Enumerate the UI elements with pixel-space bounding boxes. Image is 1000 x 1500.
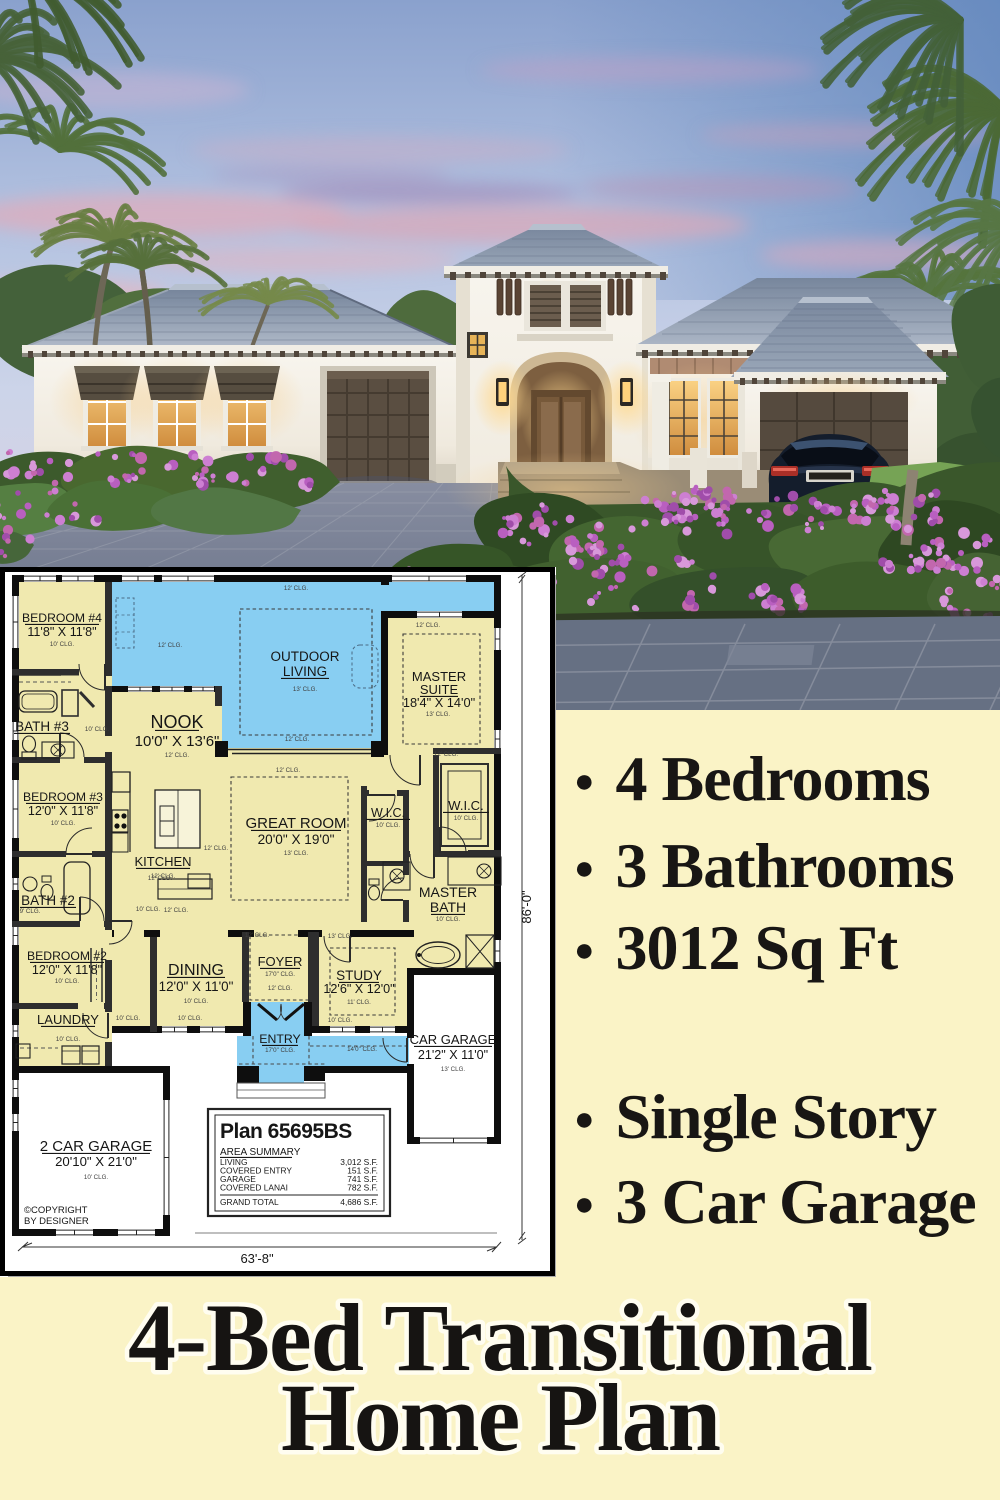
svg-text:18'4" X 14'0": 18'4" X 14'0" xyxy=(403,695,475,710)
svg-text:14'0" CLG.: 14'0" CLG. xyxy=(347,1046,377,1053)
svg-text:11'8" X 11'8": 11'8" X 11'8" xyxy=(27,625,96,639)
svg-text:ENTRY: ENTRY xyxy=(259,1032,300,1046)
svg-text:11' CLG.: 11' CLG. xyxy=(347,999,371,1006)
svg-text:12' CLG.: 12' CLG. xyxy=(434,751,459,758)
svg-text:12'6" X 12'0": 12'6" X 12'0" xyxy=(323,982,394,996)
svg-text:Home Plan: Home Plan xyxy=(281,1364,720,1471)
svg-text:BATH #2: BATH #2 xyxy=(21,893,75,908)
svg-text:86'-0": 86'-0" xyxy=(519,890,534,924)
svg-text:BATH: BATH xyxy=(430,899,466,915)
svg-text:10' CLG.: 10' CLG. xyxy=(328,1017,353,1024)
svg-text:12' CLG.: 12' CLG. xyxy=(164,907,189,914)
svg-text:10' CLG.: 10' CLG. xyxy=(454,815,479,822)
svg-text:10' CLG.: 10' CLG. xyxy=(116,1015,141,1022)
svg-text:10' CLG.: 10' CLG. xyxy=(436,916,461,923)
svg-text:COVERED LANAI: COVERED LANAI xyxy=(220,1183,288,1193)
svg-text:W.I.C.: W.I.C. xyxy=(448,798,483,813)
svg-text:W.I.C.: W.I.C. xyxy=(371,806,405,820)
svg-text:13' CLG.: 13' CLG. xyxy=(328,933,353,940)
svg-text:10' CLG.: 10' CLG. xyxy=(56,1036,81,1043)
svg-text:MASTER: MASTER xyxy=(419,884,477,900)
svg-text:13' CLG.: 13' CLG. xyxy=(441,1066,466,1073)
svg-text:12'0" X 11'8": 12'0" X 11'8" xyxy=(28,804,98,818)
svg-text:12' CLG.: 12' CLG. xyxy=(245,932,270,939)
svg-text:FOYER: FOYER xyxy=(258,954,303,969)
svg-text:BEDROOM #2: BEDROOM #2 xyxy=(27,949,107,963)
svg-text:12' CLG.: 12' CLG. xyxy=(165,752,190,759)
svg-text:GREAT ROOM: GREAT ROOM xyxy=(245,815,346,832)
svg-text:17'0" CLG.: 17'0" CLG. xyxy=(265,971,295,978)
svg-text:BY DESIGNER: BY DESIGNER xyxy=(24,1216,89,1227)
svg-text:63'-8": 63'-8" xyxy=(240,1251,274,1266)
svg-text:13' CLG.: 13' CLG. xyxy=(426,711,451,718)
svg-text:10' CLG.: 10' CLG. xyxy=(178,1015,203,1022)
svg-text:10' CLG.: 10' CLG. xyxy=(85,726,110,733)
svg-text:12' CLG.: 12' CLG. xyxy=(158,642,183,649)
svg-text:GRAND TOTAL: GRAND TOTAL xyxy=(220,1197,279,1207)
svg-text:20'10" X 21'0": 20'10" X 21'0" xyxy=(55,1154,137,1169)
svg-text:2 CAR GARAGE: 2 CAR GARAGE xyxy=(40,1138,153,1155)
svg-text:KITCHEN: KITCHEN xyxy=(134,854,191,869)
svg-text:NOOK: NOOK xyxy=(150,712,203,732)
svg-text:10' CLG.: 10' CLG. xyxy=(136,906,161,913)
svg-text:21'2" X 11'0": 21'2" X 11'0" xyxy=(418,1048,488,1062)
svg-text:782 S.F.: 782 S.F. xyxy=(347,1183,378,1193)
svg-text:4,686 S.F.: 4,686 S.F. xyxy=(340,1197,378,1207)
svg-text:13' CLG.: 13' CLG. xyxy=(284,850,309,857)
svg-text:12'0" X 11'8": 12'0" X 11'8" xyxy=(32,963,102,977)
svg-text:13' CLG.: 13' CLG. xyxy=(293,686,318,693)
svg-text:9' CLG.: 9' CLG. xyxy=(20,908,41,915)
svg-text:10' CLG.: 10' CLG. xyxy=(84,1174,109,1181)
svg-text:12' CLG.: 12' CLG. xyxy=(284,585,309,592)
svg-text:LAUNDRY: LAUNDRY xyxy=(37,1012,99,1027)
svg-text:BEDROOM #4: BEDROOM #4 xyxy=(22,611,102,625)
svg-text:10' CLG.: 10' CLG. xyxy=(55,978,80,985)
svg-text:OUTDOOR: OUTDOOR xyxy=(271,649,340,664)
svg-text:BEDROOM #3: BEDROOM #3 xyxy=(23,790,103,804)
svg-text:STUDY: STUDY xyxy=(336,968,382,983)
svg-text:DINING: DINING xyxy=(168,962,224,979)
svg-text:12'0" X 11'0": 12'0" X 11'0" xyxy=(159,979,234,994)
svg-text:12' CLG.: 12' CLG. xyxy=(285,736,310,743)
svg-text:20'0" X 19'0": 20'0" X 19'0" xyxy=(258,832,335,847)
svg-text:10' CLG.: 10' CLG. xyxy=(376,822,401,829)
svg-text:12' CLG.: 12' CLG. xyxy=(416,622,441,629)
svg-text:Plan 65695BS: Plan 65695BS xyxy=(220,1120,352,1143)
svg-text:12' CLG.: 12' CLG. xyxy=(204,845,229,852)
svg-text:10' CLG.: 10' CLG. xyxy=(51,820,76,827)
svg-text:BATH #3: BATH #3 xyxy=(15,719,69,734)
svg-text:CAR GARAGE: CAR GARAGE xyxy=(410,1032,497,1047)
svg-text:10' CLG.: 10' CLG. xyxy=(50,641,75,648)
svg-text:©COPYRIGHT: ©COPYRIGHT xyxy=(24,1205,88,1216)
svg-text:10'0" X 13'6": 10'0" X 13'6" xyxy=(135,733,220,750)
svg-text:10' CLG.: 10' CLG. xyxy=(184,998,209,1005)
svg-text:17'0" CLG.: 17'0" CLG. xyxy=(265,1047,295,1054)
svg-text:12' CLG.: 12' CLG. xyxy=(268,985,293,992)
svg-text:12' CLG.: 12' CLG. xyxy=(148,875,173,882)
svg-text:LIVING: LIVING xyxy=(283,664,327,679)
svg-text:12' CLG.: 12' CLG. xyxy=(276,767,301,774)
